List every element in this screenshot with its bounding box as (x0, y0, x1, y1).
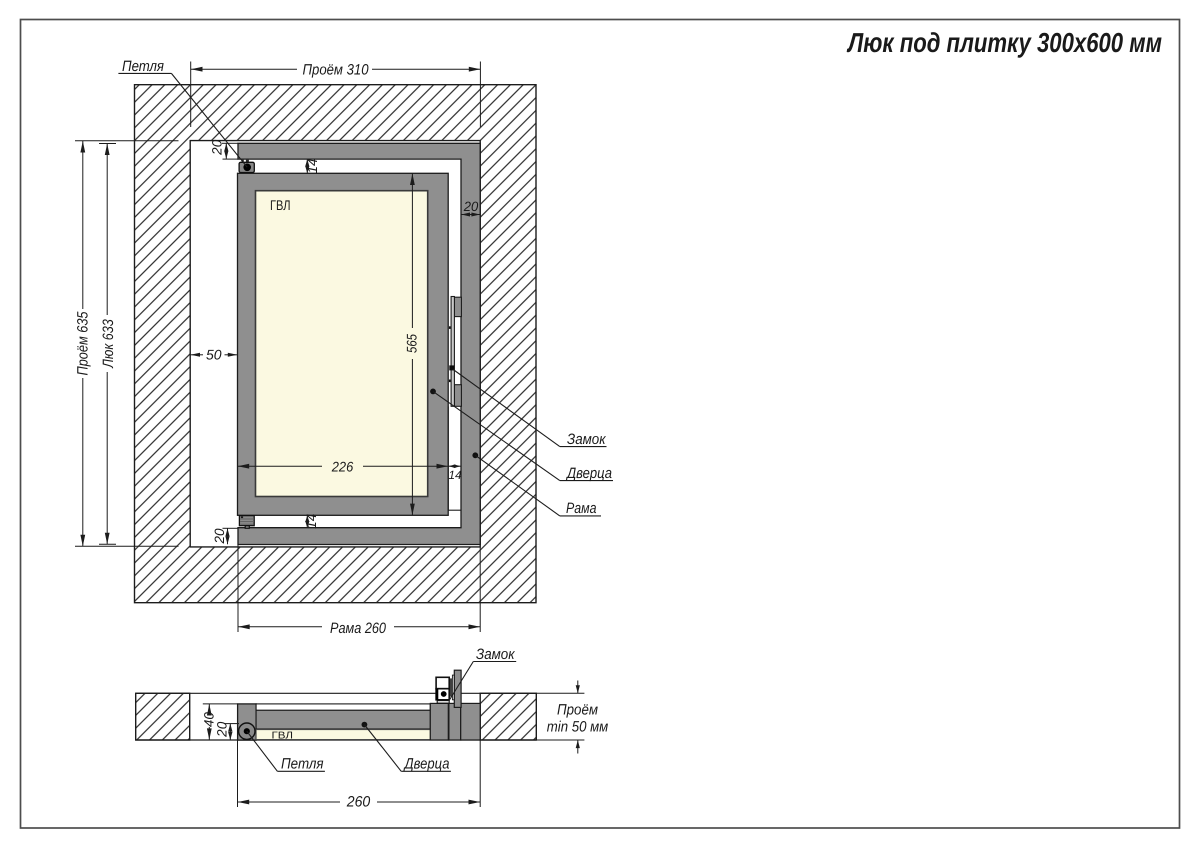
svg-text:20: 20 (212, 528, 227, 545)
svg-text:Петля: Петля (122, 58, 164, 75)
svg-text:ГВЛ: ГВЛ (272, 730, 294, 741)
svg-text:Люк под плитку 300х600 мм: Люк под плитку 300х600 мм (846, 27, 1162, 58)
svg-text:226: 226 (331, 458, 354, 474)
svg-text:565: 565 (404, 334, 420, 353)
svg-text:Петля: Петля (281, 756, 324, 773)
svg-text:14: 14 (448, 468, 462, 482)
svg-text:Замок: Замок (476, 646, 515, 663)
svg-text:20: 20 (214, 721, 229, 738)
svg-text:ГВЛ: ГВЛ (270, 197, 291, 213)
svg-text:50: 50 (206, 346, 222, 362)
svg-text:Люк 633: Люк 633 (100, 319, 117, 369)
svg-text:Дверца: Дверца (565, 465, 612, 482)
svg-text:Проём 635: Проём 635 (74, 311, 91, 376)
svg-text:260: 260 (346, 794, 371, 811)
svg-text:Дверца: Дверца (403, 756, 450, 773)
svg-text:Проём: Проём (557, 702, 598, 719)
svg-text:Рама: Рама (566, 500, 597, 517)
svg-text:Замок: Замок (567, 431, 606, 448)
svg-text:Рама 260: Рама 260 (330, 620, 387, 637)
svg-text:20: 20 (210, 139, 225, 156)
svg-text:20: 20 (463, 199, 479, 214)
svg-text:min 50 мм: min 50 мм (547, 719, 609, 736)
svg-text:14: 14 (305, 158, 320, 173)
svg-text:Проём 310: Проём 310 (303, 62, 370, 79)
svg-text:14: 14 (304, 514, 319, 529)
